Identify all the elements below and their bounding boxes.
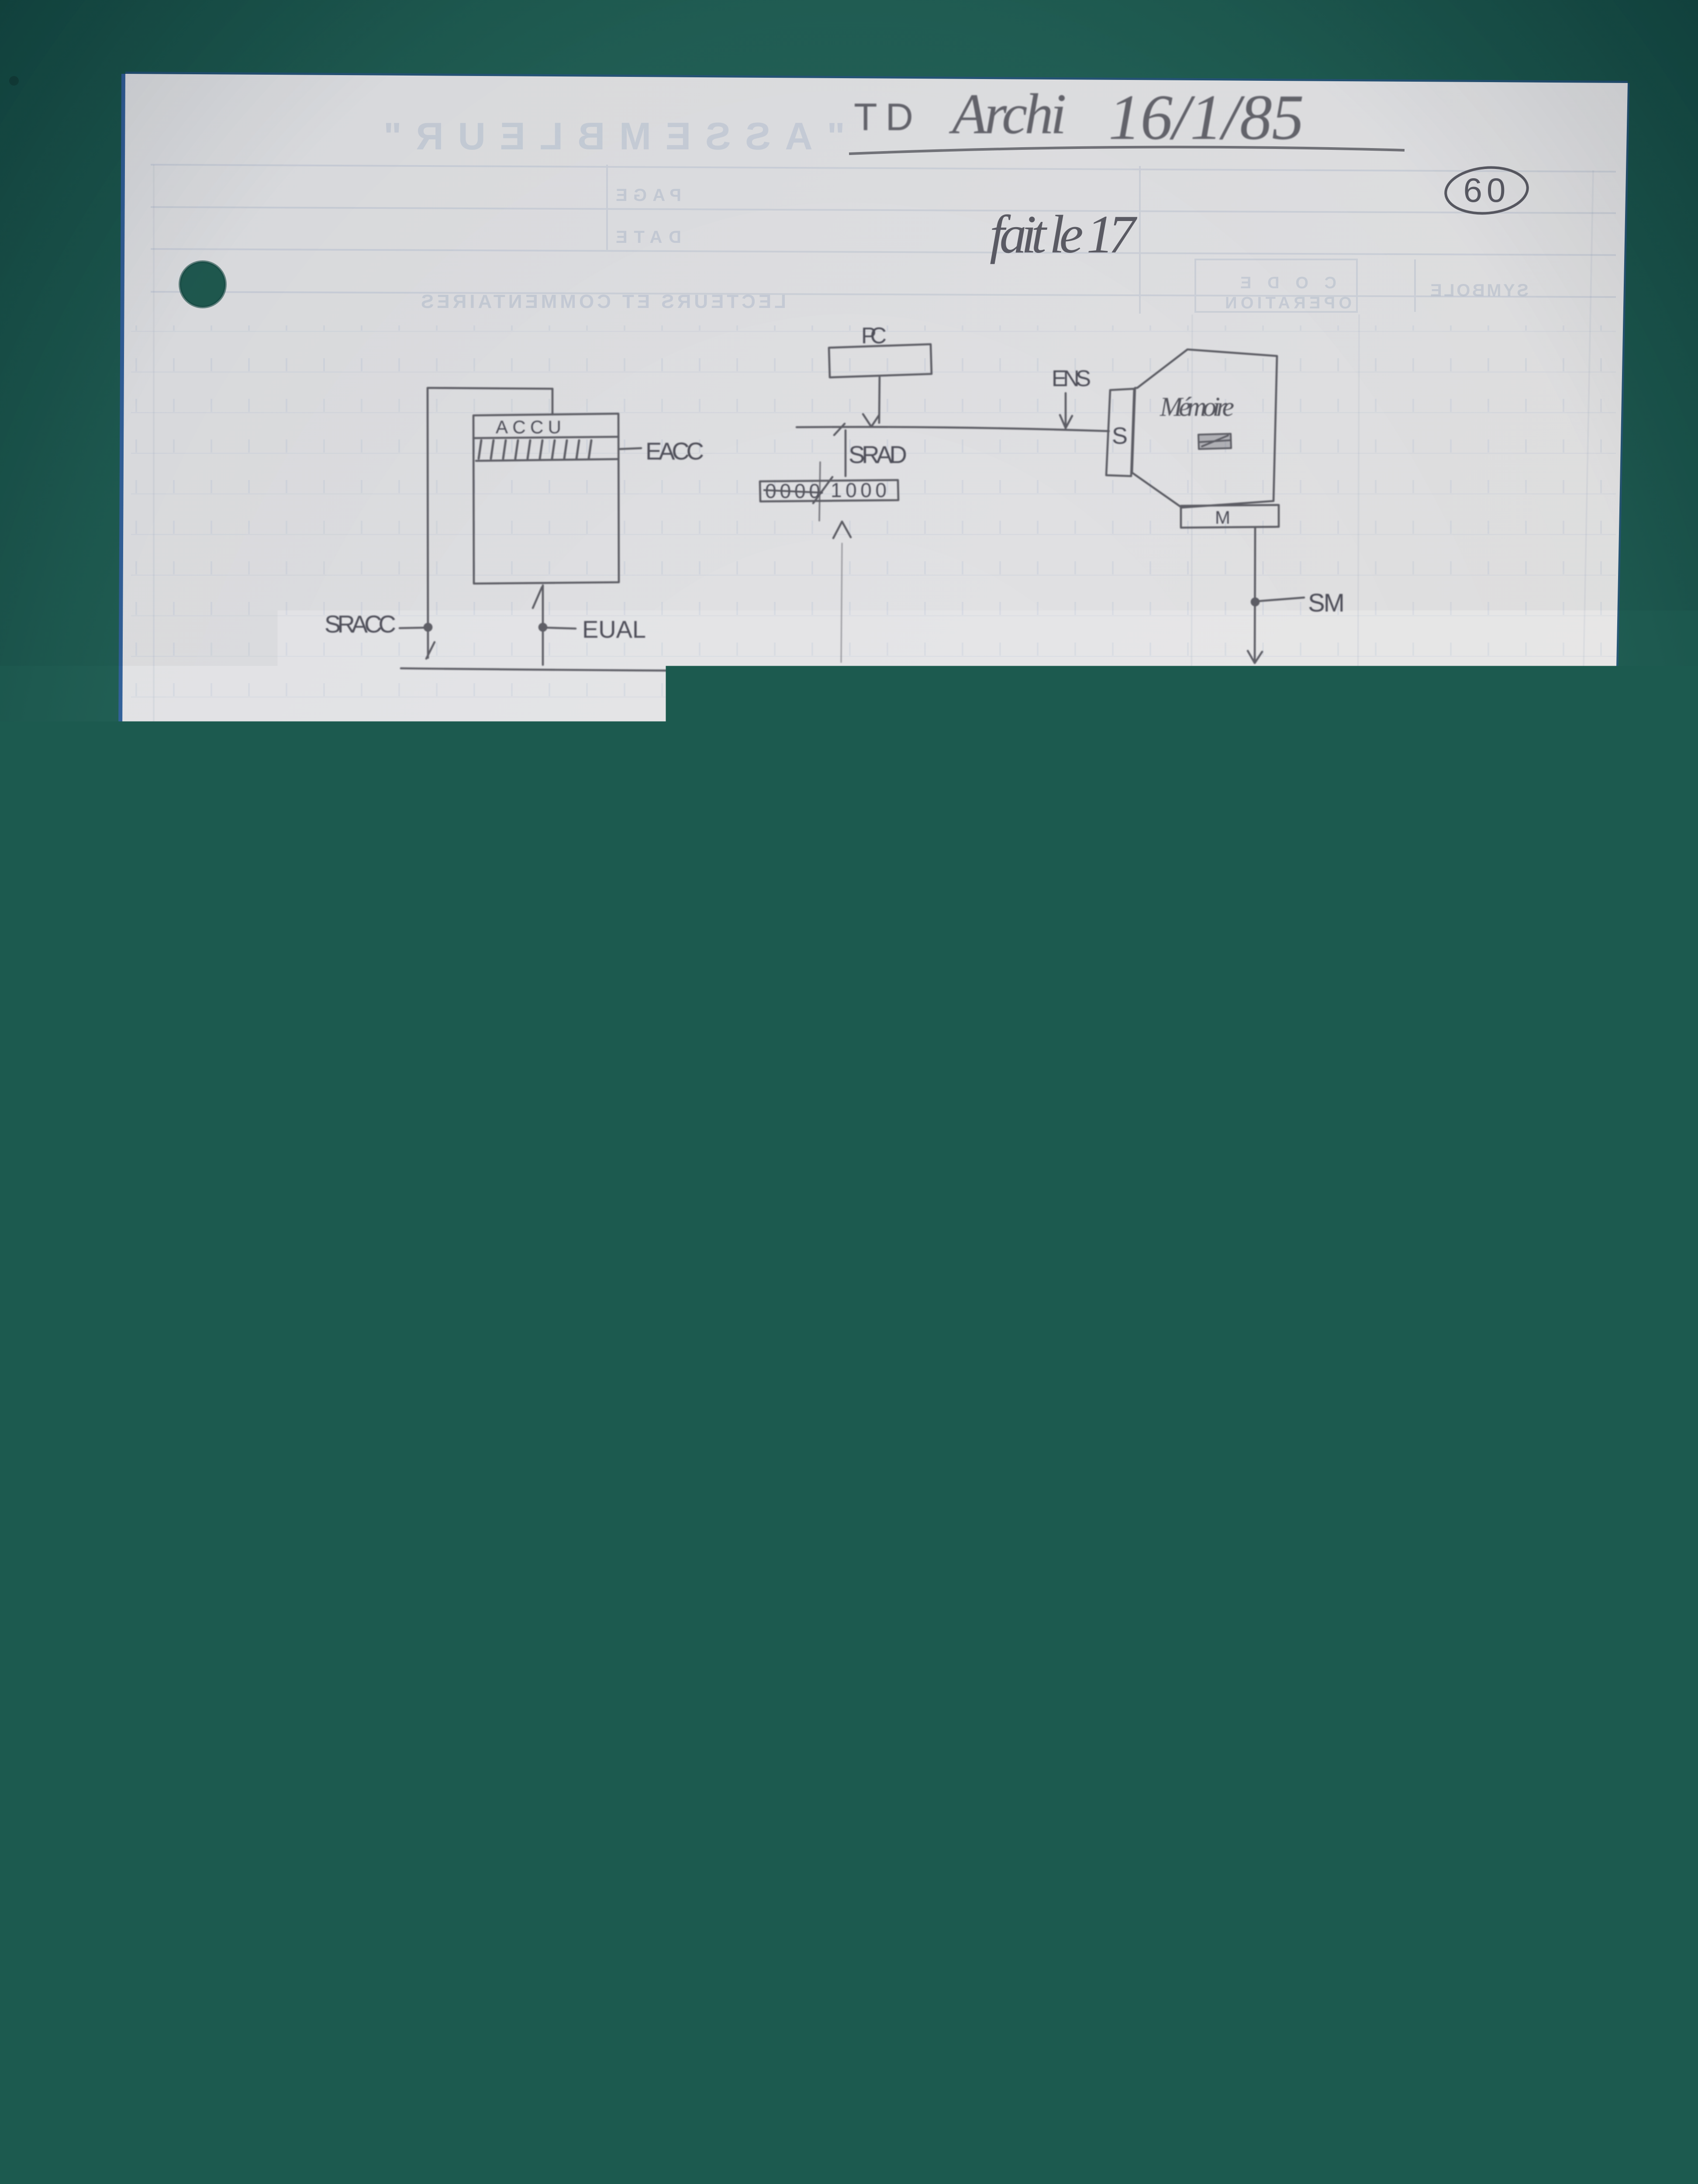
svg-text:OPERATION: OPERATION bbox=[1225, 294, 1352, 312]
svg-text:et on peut déjà engager l'opér: et on peut déjà engager l'opération de c… bbox=[520, 1278, 1538, 1325]
svg-text:EUAL: EUAL bbox=[582, 615, 649, 643]
svg-text:9: 9 bbox=[1018, 1462, 1029, 1485]
svg-text:4: 4 bbox=[1025, 1501, 1034, 1521]
svg-text:H: H bbox=[946, 1456, 959, 1477]
svg-text:H: H bbox=[812, 1452, 826, 1474]
svg-text:SRACC: SRACC bbox=[324, 610, 398, 638]
svg-text:SM: SM bbox=[1308, 589, 1348, 617]
svg-text:Archi: Archi bbox=[949, 82, 1066, 146]
svg-text:EACC: EACC bbox=[307, 1358, 386, 1387]
svg-text:4: 4 bbox=[970, 1465, 980, 1486]
svg-text:S: S bbox=[1112, 423, 1128, 449]
svg-text:ENS: ENS bbox=[321, 983, 390, 1012]
svg-text:1: 1 bbox=[599, 1497, 609, 1516]
svg-text:CHA: CHA bbox=[230, 1854, 317, 1882]
svg-text:EACC: EACC bbox=[645, 437, 707, 465]
svg-text:3: 3 bbox=[837, 1461, 847, 1482]
svg-text:Mémoire: Mémoire bbox=[1160, 392, 1234, 422]
svg-text:donner accès à l'UAL à la donn: donner accès à l'UAL à la donnée bbox=[520, 1195, 1291, 1242]
svg-text:16/1/85: 16/1/85 bbox=[1108, 82, 1306, 153]
svg-text:valider le résultat en le tran: valider le résultat en le transférant da… bbox=[523, 1357, 1515, 1403]
svg-text:SYMBOLE: SYMBOLE bbox=[1430, 281, 1529, 300]
svg-text:2: 2 bbox=[697, 1462, 707, 1483]
svg-text:H: H bbox=[673, 1457, 686, 1477]
svg-text:ENS: ENS bbox=[1052, 366, 1097, 391]
svg-text:valider cette adresse pour la: valider cette adresse pour la mémoire pa… bbox=[531, 980, 1575, 1027]
svg-text:LEC: LEC bbox=[323, 1075, 388, 1104]
svg-text:TD: TD bbox=[854, 95, 919, 138]
svg-text:fait le 17: fait le 17 bbox=[990, 204, 1138, 264]
svg-text:EACC: EACC bbox=[256, 1939, 333, 1968]
svg-text:3: 3 bbox=[885, 1503, 894, 1522]
svg-text:SRM: SRM bbox=[242, 1693, 319, 1721]
svg-text:ENA: ENA bbox=[253, 1775, 318, 1803]
svg-text:ENS: ENS bbox=[244, 1569, 323, 1598]
svg-text:CHA: CHA bbox=[323, 1279, 388, 1308]
svg-text:M: M bbox=[1215, 507, 1230, 528]
svg-text:l'instruction.: l'instruction. bbox=[197, 2054, 378, 2094]
svg-text:PC: PC bbox=[861, 323, 890, 349]
svg-text:60: 60 bbox=[1463, 171, 1510, 209]
svg-text:1: 1 bbox=[551, 1461, 562, 1482]
svg-text:LEC: LEC bbox=[242, 1654, 316, 1682]
svg-text:il faut: il faut bbox=[432, 802, 558, 850]
svg-text:SRAD: SRAD bbox=[849, 441, 910, 468]
svg-text:H: H bbox=[527, 1441, 541, 1464]
svg-text:SRAD: SRAD bbox=[323, 905, 407, 934]
svg-text:decodage de: decodage de bbox=[192, 2003, 369, 2048]
svg-text:ACCU: ACCU bbox=[496, 417, 569, 437]
svg-text:LECTEURS ET COMMENTAIRES: LECTEURS ET COMMENTAIRES bbox=[419, 291, 786, 312]
svg-text:ENA: ENA bbox=[319, 1202, 384, 1231]
